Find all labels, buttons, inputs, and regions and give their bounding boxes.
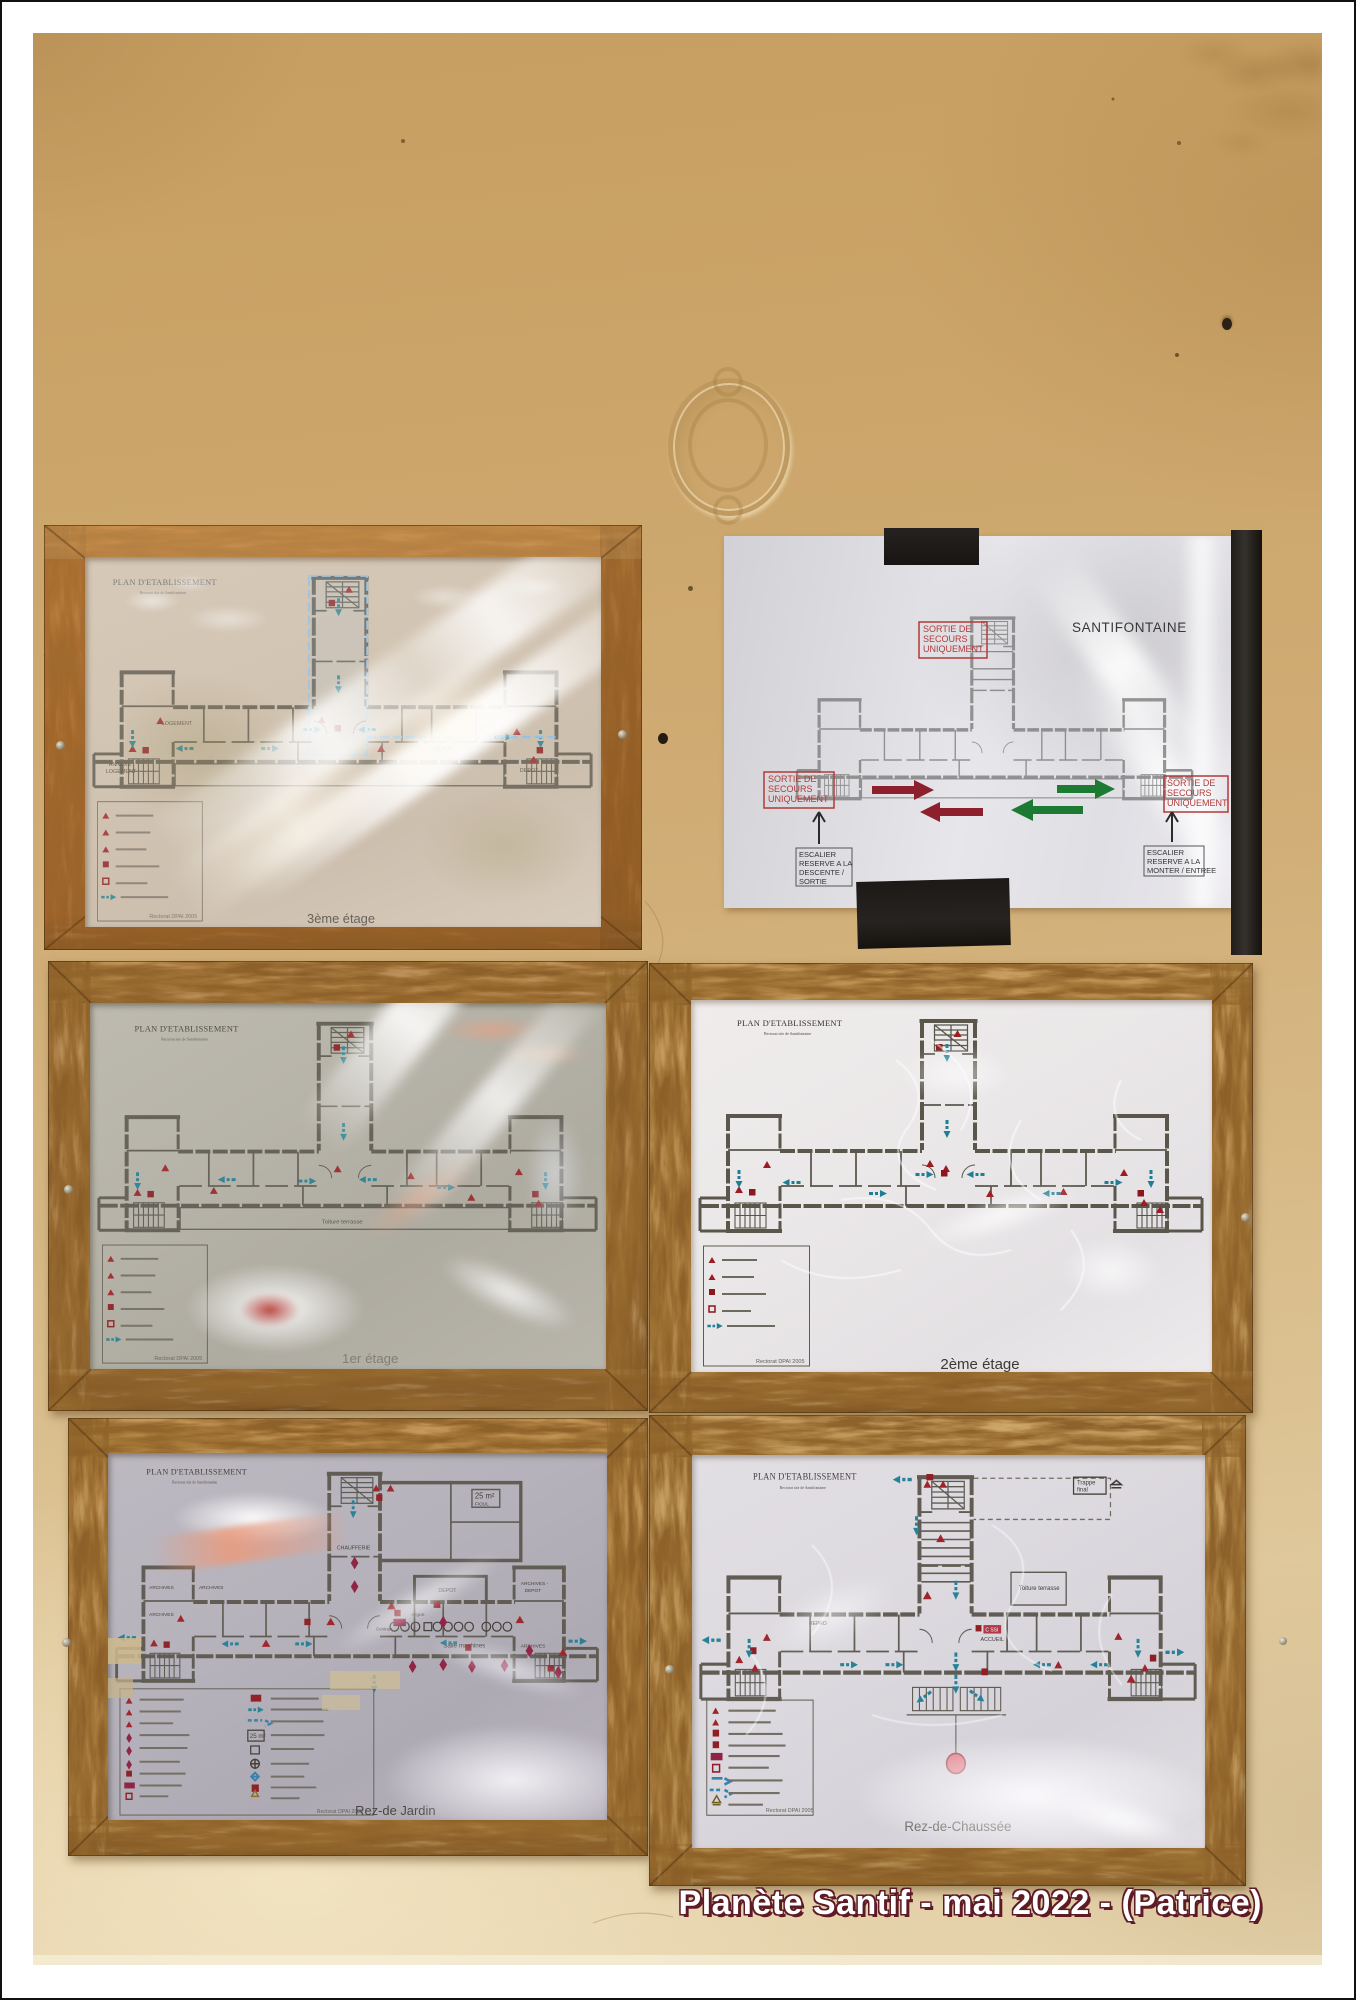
svg-text:SECOURS: SECOURS [768, 784, 813, 794]
svg-text:DEPOT: DEPOT [520, 768, 539, 774]
svg-text:ESCALIER: ESCALIER [799, 850, 837, 859]
svg-text:Rectorat site de Santifontaine: Rectorat site de Santifontaine [161, 1036, 208, 1041]
svg-text:25 m²: 25 m² [250, 1733, 266, 1740]
svg-text:RESERVE A LA: RESERVE A LA [799, 859, 852, 868]
svg-text:ESCALIER: ESCALIER [1147, 848, 1185, 857]
svg-text:FIOUL: FIOUL [475, 1501, 489, 1507]
svg-text:UNIQUEMENT: UNIQUEMENT [1167, 798, 1228, 808]
svg-text:ARCHIVES: ARCHIVES [149, 1585, 174, 1591]
svg-text:PLAN D'ETABLISSEMENT: PLAN D'ETABLISSEMENT [146, 1468, 247, 1477]
svg-text:DESCENTE /: DESCENTE / [799, 868, 845, 877]
svg-text:DEPOT: DEPOT [525, 1588, 542, 1594]
svg-text:UNIQUEMENT: UNIQUEMENT [923, 644, 984, 654]
svg-text:SORTIE DE: SORTIE DE [1167, 778, 1215, 788]
svg-text:Rectorat site de Santifontaine: Rectorat site de Santifontaine [172, 1481, 217, 1485]
svg-text:SECOURS: SECOURS [1167, 788, 1212, 798]
svg-text:SORTIE DE: SORTIE DE [768, 774, 816, 784]
svg-text:SORTIE DE: SORTIE DE [923, 624, 971, 634]
svg-text:MONTER / ENTREE: MONTER / ENTREE [1147, 866, 1216, 875]
svg-text:SECOURS: SECOURS [923, 634, 968, 644]
svg-text:SORTIE: SORTIE [799, 877, 827, 886]
svg-text:ARCHIVES: ARCHIVES [149, 1612, 174, 1618]
svg-text:RESERVE A LA: RESERVE A LA [1147, 857, 1200, 866]
svg-text:ARCHIVES -: ARCHIVES - [521, 1581, 549, 1587]
svg-text:UNIQUEMENT: UNIQUEMENT [768, 794, 829, 804]
svg-text:3ème étage: 3ème étage [307, 911, 375, 926]
svg-text:25 m²: 25 m² [475, 1491, 495, 1500]
svg-text:PLAN D'ETABLISSEMENT: PLAN D'ETABLISSEMENT [135, 1025, 239, 1034]
svg-text:ARCHIVES: ARCHIVES [199, 1585, 224, 1591]
